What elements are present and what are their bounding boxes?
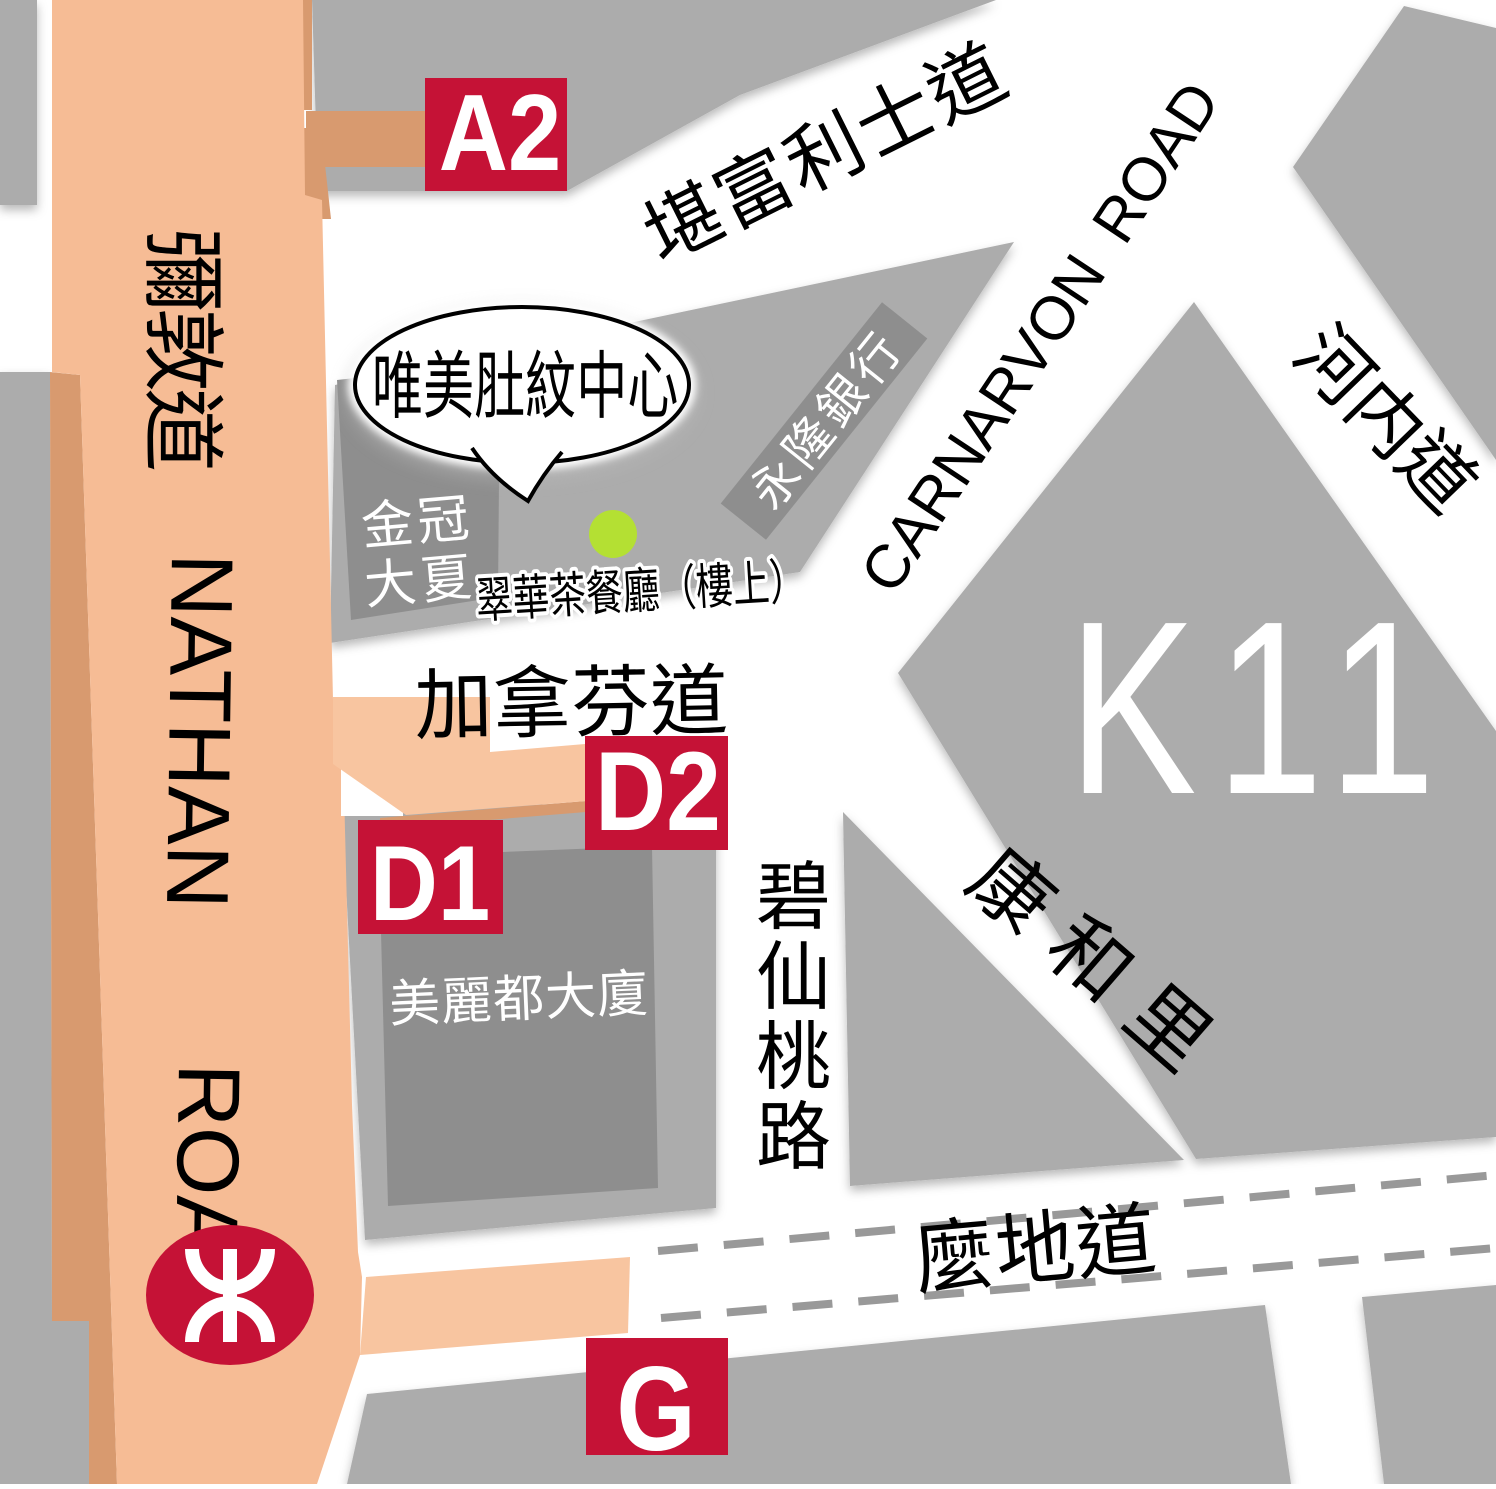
svg-text:G: G <box>616 1341 695 1476</box>
svg-text:K11: K11 <box>1068 569 1455 846</box>
svg-text:D2: D2 <box>595 730 721 854</box>
svg-text:D1: D1 <box>370 824 490 943</box>
svg-text:A2: A2 <box>439 71 562 193</box>
svg-text:NATHAN: NATHAN <box>148 553 252 910</box>
